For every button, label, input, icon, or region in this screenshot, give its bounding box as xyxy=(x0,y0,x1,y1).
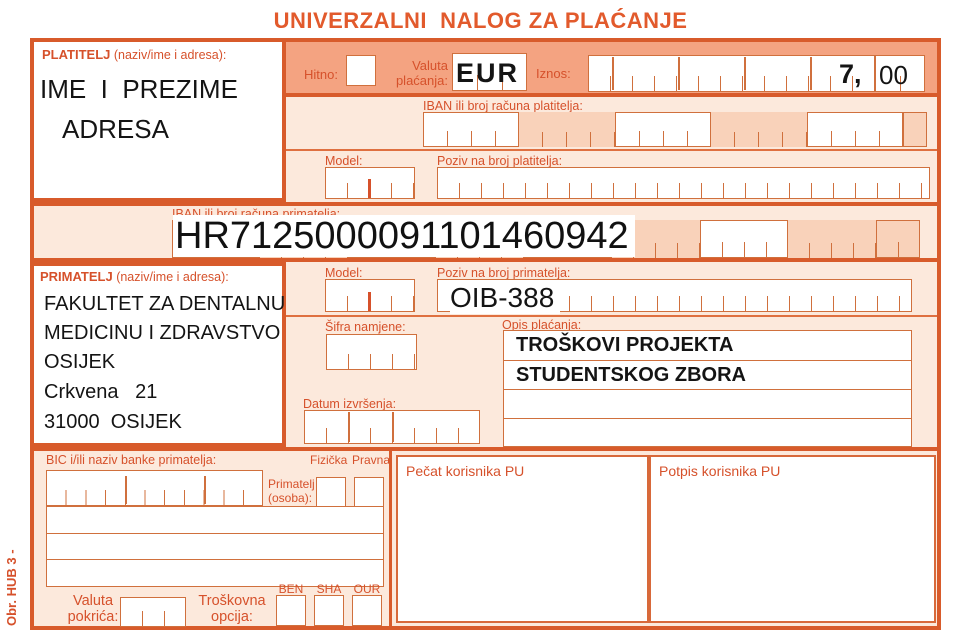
payment-form-page: UNIVERZALNI NALOG ZA PLAĆANJE Hitno: Val… xyxy=(0,0,961,633)
recipient-name-line: MEDICINU I ZDRAVSTVO xyxy=(44,322,280,345)
bank-bic-field[interactable] xyxy=(46,470,263,506)
payer-iban-field[interactable] xyxy=(615,112,711,147)
cost-option-sha-label: SHA xyxy=(314,582,344,596)
cost-option-our-label: OUR xyxy=(352,582,382,596)
fizicka-checkbox[interactable] xyxy=(316,477,346,508)
signature-label: Potpis korisnika PU xyxy=(651,457,934,479)
bic-group-divider xyxy=(204,476,206,504)
execution-date-label: Datum izvršenja: xyxy=(303,397,396,411)
bank-name-line[interactable] xyxy=(46,506,384,534)
payer-iban-field[interactable] xyxy=(711,112,807,147)
recipient-person-label: Primatelj (osoba): xyxy=(268,477,316,505)
bic-group-divider xyxy=(125,476,127,504)
description-line-2: STUDENTSKOG ZBORA xyxy=(504,360,911,389)
sha-checkbox[interactable] xyxy=(314,595,344,626)
model-center-tick xyxy=(368,292,371,311)
recipient-name-line: OSIJEK xyxy=(44,351,115,374)
currency-value: EUR xyxy=(456,58,519,89)
cost-option-label: Troškovna opcija: xyxy=(192,593,272,625)
amount-group-divider xyxy=(612,57,614,90)
urgent-label: Hitno: xyxy=(304,68,338,82)
payer-iban-label: IBAN ili broj računa platitelja: xyxy=(423,99,583,113)
amount-label: Iznos: xyxy=(536,67,571,81)
amount-group-divider xyxy=(678,57,680,90)
urgent-checkbox[interactable] xyxy=(346,55,376,86)
amount-cents-value: 00 xyxy=(879,60,908,91)
signature-area[interactable]: Potpis korisnika PU xyxy=(649,455,936,623)
form-code: Obr. HUB 3 - xyxy=(4,508,19,626)
description-line-3 xyxy=(504,389,911,418)
amount-group-divider xyxy=(810,57,812,90)
purpose-code-field[interactable] xyxy=(326,334,417,370)
payer-label: PLATITELJ (naziv/ime i adresa): xyxy=(42,48,226,62)
person-type-pravna-label: Pravna xyxy=(352,453,390,467)
recipient-label: PRIMATELJ (naziv/ime i adresa): xyxy=(40,270,229,284)
recipient-model-label: Model: xyxy=(325,266,363,280)
stamp-label: Pečat korisnika PU xyxy=(398,457,647,479)
amount-field[interactable] xyxy=(588,55,875,92)
recipient-city: 31000 OSIJEK xyxy=(44,411,182,434)
amount-value: 7, xyxy=(839,59,862,90)
description-line-1: TROŠKOVI PROJEKTA xyxy=(504,331,911,360)
recipient-reference-label: Poziv na broj primatelja: xyxy=(437,266,570,280)
section-divider xyxy=(30,447,941,451)
cover-currency-field[interactable] xyxy=(120,597,186,627)
recipient-name-line: FAKULTET ZA DENTALNU xyxy=(44,293,285,316)
recipient-iban-field[interactable] xyxy=(876,220,920,258)
cost-option-ben-label: BEN xyxy=(276,582,306,596)
our-checkbox[interactable] xyxy=(352,595,382,626)
description-field[interactable]: TROŠKOVI PROJEKTA STUDENTSKOG ZBORA xyxy=(503,330,912,447)
date-group-divider xyxy=(348,412,350,442)
form-title: UNIVERZALNI NALOG ZA PLAĆANJE xyxy=(0,8,961,34)
payer-address: ADRESA xyxy=(62,114,169,145)
ben-checkbox[interactable] xyxy=(276,595,306,626)
recipient-iban-field[interactable] xyxy=(700,220,788,258)
description-line-4 xyxy=(504,418,911,447)
row-divider xyxy=(286,315,937,317)
recipient-reference-value: OIB-388 xyxy=(450,282,560,314)
amount-group-divider xyxy=(744,57,746,90)
payer-reference-field[interactable] xyxy=(437,167,930,199)
recipient-iban-value: HR7125000091101460942 xyxy=(173,215,635,257)
bank-label: BIC i/ili naziv banke primatelja: xyxy=(46,453,216,467)
date-group-divider xyxy=(392,412,394,442)
person-type-fizicka-label: Fizička xyxy=(310,453,347,467)
bank-name-line[interactable] xyxy=(46,533,384,561)
bottom-divider xyxy=(389,451,392,626)
pravna-checkbox[interactable] xyxy=(354,477,384,508)
row-divider xyxy=(286,149,937,151)
payer-name: IME I PREZIME xyxy=(40,74,238,105)
section-divider xyxy=(30,202,941,206)
payer-model-label: Model: xyxy=(325,154,363,168)
payer-iban-field[interactable] xyxy=(519,112,615,147)
currency-label: Valuta plaćanja: xyxy=(386,58,448,88)
payer-iban-field[interactable] xyxy=(807,112,903,147)
recipient-iban-field[interactable] xyxy=(788,220,876,258)
payer-reference-label: Poziv na broj platitelja: xyxy=(437,154,562,168)
payer-iban-field[interactable] xyxy=(903,112,927,147)
recipient-street: Crkvena 21 xyxy=(44,381,157,404)
stamp-area[interactable]: Pečat korisnika PU xyxy=(396,455,649,623)
model-center-tick xyxy=(368,179,371,198)
payer-iban-field[interactable] xyxy=(423,112,519,147)
purpose-code-label: Šifra namjene: xyxy=(325,320,406,334)
